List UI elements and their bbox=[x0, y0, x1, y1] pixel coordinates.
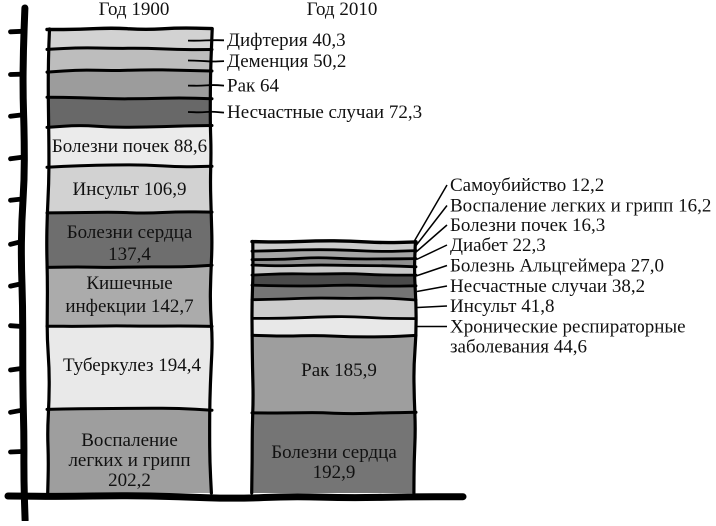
svg-text:Рак 64: Рак 64 bbox=[227, 76, 279, 97]
svg-text:Год 2010: Год 2010 bbox=[307, 0, 378, 20]
svg-text:Кишечные: Кишечные bbox=[86, 273, 172, 294]
svg-text:Воспаление легких и грипп 16,2: Воспаление легких и грипп 16,2 bbox=[450, 196, 711, 217]
svg-text:Диабет 22,3: Диабет 22,3 bbox=[450, 235, 546, 256]
svg-text:заболевания 44,6: заболевания 44,6 bbox=[450, 337, 587, 358]
svg-text:Болезни сердца: Болезни сердца bbox=[67, 222, 193, 243]
svg-text:Туберкулез 194,4: Туберкулез 194,4 bbox=[63, 355, 202, 376]
svg-text:Болезнь Альцгеймера 27,0: Болезнь Альцгеймера 27,0 bbox=[450, 256, 664, 277]
svg-text:Инсульт 106,9: Инсульт 106,9 bbox=[73, 179, 187, 200]
svg-text:192,9: 192,9 bbox=[313, 462, 356, 483]
svg-text:202,2: 202,2 bbox=[108, 470, 151, 491]
svg-text:Несчастные случаи 38,2: Несчастные случаи 38,2 bbox=[450, 276, 645, 297]
svg-text:Деменция 50,2: Деменция 50,2 bbox=[227, 51, 346, 72]
svg-text:Год 1900: Год 1900 bbox=[99, 0, 170, 20]
svg-text:Дифтерия 40,3: Дифтерия 40,3 bbox=[227, 30, 346, 51]
svg-text:Болезни почек 88,6: Болезни почек 88,6 bbox=[52, 136, 207, 157]
svg-text:Болезни почек 16,3: Болезни почек 16,3 bbox=[450, 215, 605, 236]
svg-text:Болезни сердца: Болезни сердца bbox=[271, 442, 397, 463]
svg-text:легких и грипп: легких и грипп bbox=[68, 450, 190, 471]
svg-text:Инсульт 41,8: Инсульт 41,8 bbox=[450, 296, 554, 317]
svg-text:инфекции 142,7: инфекции 142,7 bbox=[65, 296, 193, 317]
svg-text:Рак 185,9: Рак 185,9 bbox=[301, 360, 377, 381]
svg-text:Воспаление: Воспаление bbox=[81, 430, 178, 451]
svg-text:Хронические респираторные: Хронические респираторные bbox=[450, 317, 686, 338]
svg-text:137,4: 137,4 bbox=[108, 244, 151, 265]
svg-text:Самоубийство 12,2: Самоубийство 12,2 bbox=[450, 175, 604, 196]
svg-text:Несчастные случаи 72,3: Несчастные случаи 72,3 bbox=[227, 102, 422, 123]
